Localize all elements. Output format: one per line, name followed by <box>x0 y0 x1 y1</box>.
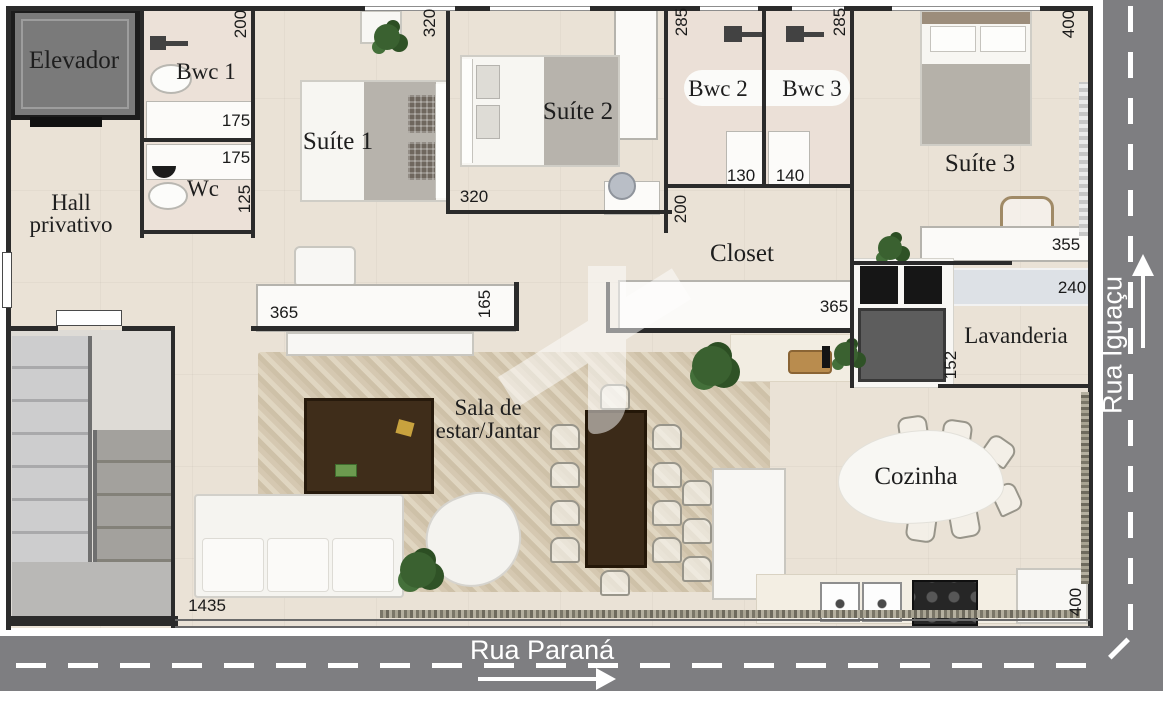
dining-chair <box>550 537 580 563</box>
pillow <box>980 26 1026 52</box>
street-right-arrow-shaft <box>1141 276 1145 348</box>
plant-icon <box>834 342 858 366</box>
wall-bwc2-left <box>664 6 668 233</box>
dining-chair <box>550 500 580 526</box>
dimension-label: 165 <box>475 290 495 318</box>
stair-flight-left <box>12 336 88 562</box>
elevator-door <box>30 117 102 127</box>
wall-suite3-left <box>850 6 854 265</box>
island-stool <box>682 556 712 582</box>
dimension-label: 285 <box>830 8 850 36</box>
sofa-cushion <box>332 538 394 592</box>
island-stool <box>682 518 712 544</box>
dining-chair <box>600 570 630 596</box>
window-top <box>490 6 590 11</box>
dining-chair <box>652 537 682 563</box>
wall-laundry-left <box>850 261 854 388</box>
pillow <box>408 95 436 133</box>
dining-chair <box>550 424 580 450</box>
wall-left <box>6 6 11 630</box>
coffee-table <box>304 398 434 494</box>
plant-icon <box>374 24 400 50</box>
suite3-label: Suíte 3 <box>945 150 1015 178</box>
living-label-line2: estar/Jantar <box>436 418 541 444</box>
window-top <box>365 6 455 11</box>
dining-chair <box>652 462 682 488</box>
pillow <box>476 105 500 139</box>
sofa-cushion <box>267 538 329 592</box>
bwc3-shower-icon <box>786 26 804 42</box>
plant-icon <box>692 346 732 386</box>
wall-elevator-right <box>140 6 144 238</box>
kitchen-label: Cozinha <box>874 463 957 491</box>
island-stool <box>682 480 712 506</box>
stair-rail <box>93 430 97 562</box>
pillow <box>930 26 976 52</box>
stair-landing <box>12 562 172 622</box>
wc-label: Wc <box>187 176 219 202</box>
wall-bwc2-bwc3 <box>762 6 766 188</box>
dimension-label: 355 <box>1052 235 1080 255</box>
wall-laundry-bottom <box>938 384 1090 388</box>
laundry-dryer <box>904 266 942 304</box>
bwc1-shower-icon <box>150 36 166 50</box>
pillow <box>408 142 436 180</box>
stair-flight-right <box>96 430 172 562</box>
wall-bwc1-wc <box>144 138 255 142</box>
suite1-label: Suíte 1 <box>303 128 373 156</box>
laundry-label: Lavanderia <box>964 323 1067 349</box>
dining-chair <box>550 462 580 488</box>
wall-bwc-bottom <box>664 184 854 188</box>
suite2-chair <box>608 172 636 200</box>
dimension-label: 125 <box>235 185 255 213</box>
suite2-wardrobe <box>614 8 658 140</box>
wall-stair-right <box>171 326 175 628</box>
pillow <box>476 65 500 99</box>
suite2-label: Suíte 2 <box>543 98 613 126</box>
floor-plan-canvas: Elevador Bwc 1 Wc Hall privativo Suíte 1… <box>0 0 1163 702</box>
dimension-label: 175 <box>222 111 250 131</box>
bwc1-shower-arm <box>166 41 188 46</box>
dimension-label: 240 <box>1058 278 1086 298</box>
dimension-label: 320 <box>460 187 488 207</box>
living-console <box>286 332 474 356</box>
dimension-label: 200 <box>231 10 251 38</box>
window-top <box>892 6 1040 11</box>
dining-chair <box>652 424 682 450</box>
street-right-label: Rua Iguaçu <box>1098 276 1129 414</box>
wall-closet-bottom <box>606 328 854 333</box>
dining-chair <box>652 500 682 526</box>
wall-living-top <box>251 326 518 331</box>
dimension-label: 140 <box>776 166 804 186</box>
dimension-label: 200 <box>671 195 691 223</box>
dimension-label: 365 <box>820 297 848 317</box>
window-bottom-line <box>175 626 1090 628</box>
street-bottom-label: Rua Paraná <box>470 635 614 666</box>
dining-chair <box>600 384 630 410</box>
bwc2-shower-arm <box>742 32 762 37</box>
table-decor <box>395 419 414 437</box>
wall-suite2-bottom <box>446 210 672 214</box>
plant-icon <box>400 552 436 588</box>
window-planter-strip <box>1081 392 1089 584</box>
wall-wardrobe-cap <box>514 282 519 331</box>
wall-bottom-left <box>8 616 178 626</box>
closet-wardrobe <box>618 280 852 332</box>
bwc3-label: Bwc 3 <box>782 76 841 102</box>
laundry-washer <box>860 266 898 304</box>
dimension-label: 365 <box>270 303 298 323</box>
plant-icon <box>878 236 902 260</box>
stair-rail <box>88 336 92 562</box>
dimension-label: 1435 <box>188 596 226 616</box>
closet-label: Closet <box>710 240 774 268</box>
bwc1-label: Bwc 1 <box>176 59 235 85</box>
dimension-label: 285 <box>672 8 692 36</box>
bwc2-label: Bwc 2 <box>688 76 747 102</box>
bwc3-shower-arm <box>804 32 824 37</box>
dimension-label: 400 <box>1066 588 1086 616</box>
street-bottom-arrow-icon <box>596 668 616 690</box>
dimension-label: 152 <box>941 351 961 379</box>
sofa-cushion <box>202 538 264 592</box>
street-bottom-arrow-shaft <box>478 677 598 681</box>
wall-closet-left <box>606 282 610 333</box>
left-entry-door <box>2 252 12 308</box>
hall-door <box>56 310 122 326</box>
elevator-label: Elevador <box>29 47 119 75</box>
wall-wc-bottom <box>144 230 255 234</box>
street-right-arrow-icon <box>1132 254 1154 276</box>
wc-toilet <box>148 182 188 210</box>
street-right-centerline <box>1128 6 1133 642</box>
suite3-bed <box>920 10 1032 146</box>
dimension-label: 400 <box>1059 10 1079 38</box>
wall-laundry-top <box>850 261 1012 265</box>
dimension-label: 175 <box>222 148 250 168</box>
sofa <box>194 494 404 598</box>
wall-hall-stair <box>8 326 58 331</box>
hall-label-line2: privativo <box>29 212 112 238</box>
window-bottom-line <box>175 619 1090 621</box>
laundry-machine <box>858 308 946 382</box>
wall-hall-stair <box>122 326 175 331</box>
dining-table <box>585 410 647 568</box>
dimension-label: 130 <box>727 166 755 186</box>
suite1-bench <box>294 246 356 288</box>
buffet-bottle <box>822 346 830 368</box>
dimension-label: 320 <box>420 9 440 37</box>
wall-suite1-suite2 <box>446 6 450 214</box>
window-planter-strip <box>380 610 1080 618</box>
table-decor <box>335 464 357 477</box>
bwc2-shower-icon <box>724 26 742 42</box>
window-top <box>700 6 758 11</box>
